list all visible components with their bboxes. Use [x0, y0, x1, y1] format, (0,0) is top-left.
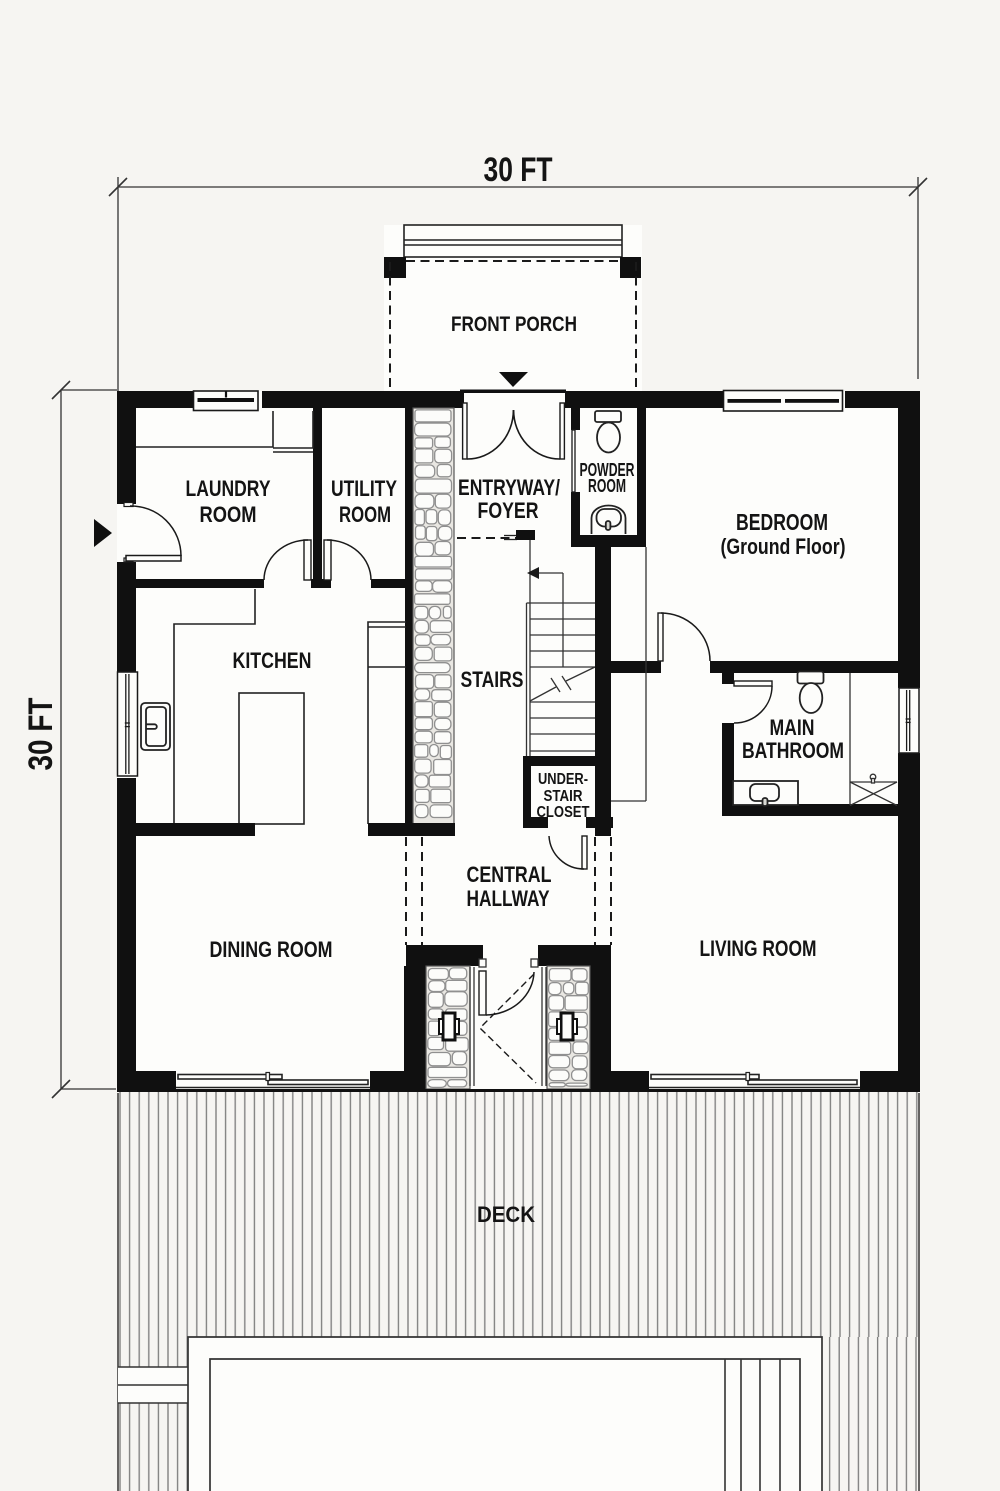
svg-text:ROOM: ROOM	[588, 476, 626, 496]
svg-text:ROOM: ROOM	[339, 502, 391, 527]
svg-text:BEDROOM: BEDROOM	[736, 509, 828, 535]
svg-text:LIVING ROOM: LIVING ROOM	[700, 936, 817, 961]
svg-text:ROOM: ROOM	[200, 502, 257, 527]
svg-text:UNDER-: UNDER-	[538, 771, 588, 788]
svg-text:30 FT: 30 FT	[22, 697, 60, 770]
svg-text:FOYER: FOYER	[478, 498, 539, 523]
svg-text:30 FT: 30 FT	[484, 151, 553, 189]
svg-text:FRONT PORCH: FRONT PORCH	[451, 313, 577, 336]
svg-text:STAIRS: STAIRS	[461, 667, 524, 692]
svg-text:UTILITY: UTILITY	[331, 476, 397, 501]
svg-text:STAIR: STAIR	[544, 788, 583, 805]
svg-text:CLOSET: CLOSET	[537, 804, 590, 821]
svg-text:(Ground Floor): (Ground Floor)	[721, 534, 846, 559]
svg-text:MAIN: MAIN	[770, 715, 815, 740]
svg-text:DINING ROOM: DINING ROOM	[210, 937, 333, 962]
svg-text:KITCHEN: KITCHEN	[233, 648, 312, 673]
svg-text:HALLWAY: HALLWAY	[467, 886, 550, 911]
svg-text:LAUNDRY: LAUNDRY	[186, 476, 271, 501]
svg-text:DECK: DECK	[477, 1202, 535, 1227]
svg-text:CENTRAL: CENTRAL	[467, 862, 552, 887]
svg-text:ENTRYWAY/: ENTRYWAY/	[458, 475, 560, 500]
svg-text:BATHROOM: BATHROOM	[742, 738, 844, 763]
